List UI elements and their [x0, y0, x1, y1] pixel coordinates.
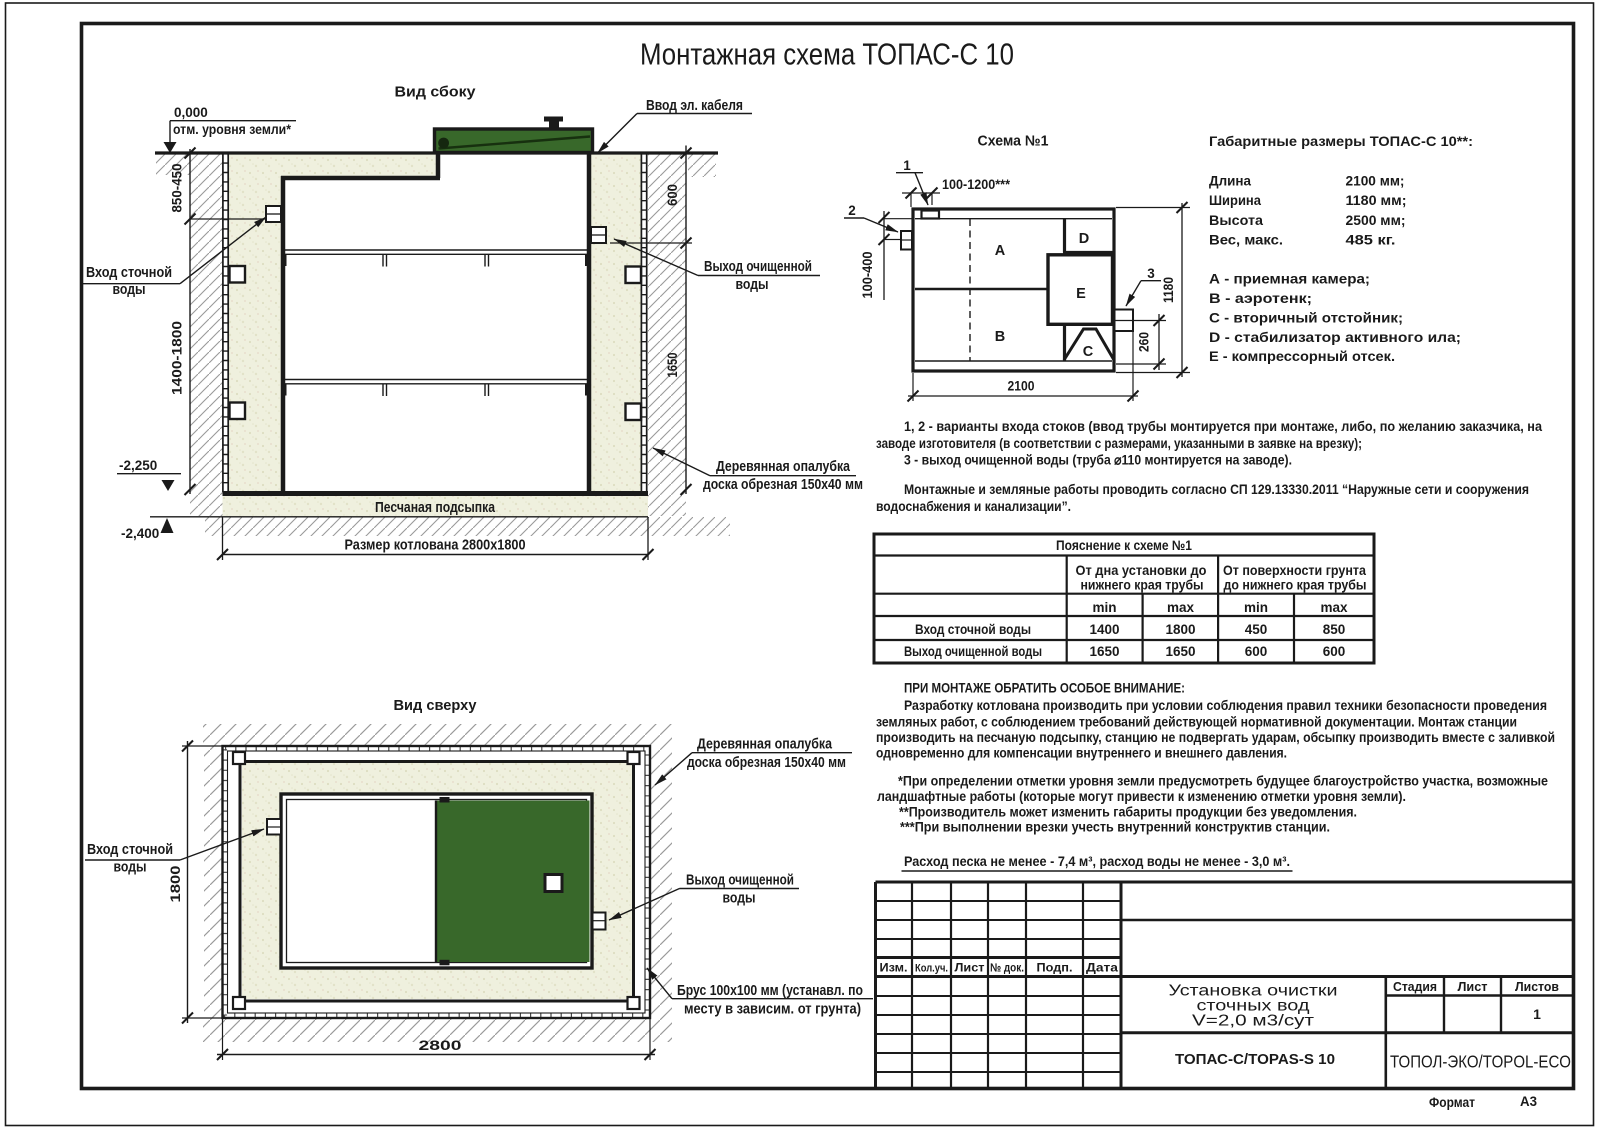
- svg-text:600: 600: [665, 184, 680, 206]
- svg-text:отм. уровня земли*: отм. уровня земли*: [173, 122, 292, 137]
- svg-text:Разработку котлована производи: Разработку котлована производить при усл…: [904, 697, 1547, 713]
- svg-text:***При выполнении врезки учест: ***При выполнении врезки учесть внутренн…: [900, 818, 1330, 834]
- svg-text:воды: воды: [736, 277, 769, 293]
- svg-text:Формат: Формат: [1429, 1095, 1475, 1110]
- svg-text:1650: 1650: [1165, 644, 1195, 659]
- svg-text:Расход песка не менее - 7,4 м³: Расход песка не менее - 7,4 м³, расход в…: [904, 853, 1290, 869]
- svg-text:C: C: [1083, 344, 1094, 360]
- svg-text:месту в зависим. от грунта): месту в зависим. от грунта): [684, 1002, 861, 1018]
- svg-text:min: min: [1244, 600, 1268, 615]
- svg-text:доска обрезная 150х40 мм: доска обрезная 150х40 мм: [687, 755, 846, 771]
- svg-text:A: A: [995, 243, 1006, 259]
- svg-text:Размер котлована 2800х1800: Размер котлована 2800х1800: [345, 538, 526, 554]
- svg-text:ТОПАС-С/TOPAS-S 10: ТОПАС-С/TOPAS-S 10: [1175, 1052, 1335, 1068]
- svg-text:2500 мм;: 2500 мм;: [1346, 212, 1406, 228]
- svg-text:D: D: [1079, 231, 1089, 247]
- svg-text:600: 600: [1323, 644, 1346, 659]
- svg-text:одновременно для компенсации в: одновременно для компенсации внутреннего…: [876, 745, 1287, 761]
- svg-text:Монтажная схема ТОПАС-С 10: Монтажная схема ТОПАС-С 10: [640, 38, 1014, 72]
- svg-text:Схема №1: Схема №1: [978, 134, 1049, 150]
- svg-text:Листов: Листов: [1515, 980, 1559, 994]
- svg-text:1650: 1650: [665, 353, 680, 378]
- svg-text:Выход очищенной: Выход очищенной: [704, 259, 812, 275]
- svg-text:1: 1: [903, 158, 911, 173]
- svg-text:производить на песчаную подсып: производить на песчаную подсыпку, станци…: [876, 729, 1555, 745]
- svg-text:Ввод эл. кабеля: Ввод эл. кабеля: [646, 98, 743, 114]
- svg-text:От дна установки до: От дна установки до: [1076, 563, 1207, 578]
- svg-text:Пояснение к схеме №1: Пояснение к схеме №1: [1056, 538, 1192, 553]
- svg-text:**Производитель может изменить: **Производитель может изменить габариты …: [899, 803, 1357, 819]
- svg-text:V=2,0 м3/сут: V=2,0 м3/сут: [1192, 1013, 1314, 1030]
- svg-text:С - вторичный отстойник;: С - вторичный отстойник;: [1209, 310, 1403, 326]
- svg-text:100-400: 100-400: [860, 252, 875, 299]
- svg-text:Лист: Лист: [955, 961, 985, 975]
- svg-text:ТОПОЛ-ЭКО/TOPOL-ECO: ТОПОЛ-ЭКО/TOPOL-ECO: [1390, 1052, 1571, 1072]
- svg-text:Деревянная опалубка: Деревянная опалубка: [716, 459, 851, 475]
- svg-text:№ док.: № док.: [990, 961, 1024, 975]
- svg-text:850-450: 850-450: [170, 164, 185, 213]
- svg-text:От поверхности грунта: От поверхности грунта: [1223, 563, 1366, 578]
- svg-text:-2,400: -2,400: [121, 526, 159, 541]
- svg-text:Вход сточной: Вход сточной: [87, 842, 173, 858]
- svg-text:нижнего края трубы: нижнего края трубы: [1081, 578, 1204, 593]
- svg-text:100-1200***: 100-1200***: [942, 177, 1011, 192]
- svg-text:2100 мм;: 2100 мм;: [1346, 173, 1405, 189]
- svg-text:B: B: [995, 329, 1005, 345]
- svg-text:Вес, макс.: Вес, макс.: [1209, 232, 1283, 248]
- svg-text:*При определении отметки уровн: *При определении отметки уровня земли пр…: [898, 773, 1548, 789]
- svg-text:1800: 1800: [1165, 622, 1195, 637]
- svg-text:Вид сбоку: Вид сбоку: [395, 85, 476, 101]
- svg-text:Вид сверху: Вид сверху: [394, 698, 477, 714]
- svg-text:D - стабилизатор активного ила: D - стабилизатор активного ила;: [1209, 329, 1461, 345]
- svg-text:min: min: [1092, 600, 1116, 615]
- svg-text:А3: А3: [1520, 1094, 1537, 1109]
- svg-text:260: 260: [1137, 332, 1152, 352]
- svg-text:E: E: [1076, 286, 1086, 302]
- svg-text:3: 3: [1147, 266, 1155, 281]
- svg-text:Деревянная опалубка: Деревянная опалубка: [697, 737, 833, 753]
- svg-text:1180 мм;: 1180 мм;: [1346, 192, 1407, 208]
- svg-text:2800: 2800: [419, 1038, 462, 1053]
- svg-text:1400: 1400: [1089, 622, 1119, 637]
- svg-text:воды: воды: [723, 891, 756, 907]
- svg-text:Вход сточной: Вход сточной: [86, 265, 172, 281]
- svg-text:ПРИ МОНТАЖЕ ОБРАТИТЬ ОСОБОЕ ВН: ПРИ МОНТАЖЕ ОБРАТИТЬ ОСОБОЕ ВНИМАНИЕ:: [904, 680, 1185, 696]
- svg-text:1800: 1800: [168, 866, 183, 903]
- svg-text:1, 2 - варианты входа стоков: 1, 2 - варианты входа стоков (ввод трубы…: [904, 418, 1542, 434]
- svg-text:Е - компрессорный отсек.: Е - компрессорный отсек.: [1209, 348, 1395, 364]
- svg-text:450: 450: [1245, 622, 1268, 637]
- svg-text:Выход очищенной: Выход очищенной: [686, 873, 794, 889]
- svg-text:Выход очищенной воды: Выход очищенной воды: [904, 644, 1042, 659]
- svg-text:max: max: [1167, 600, 1195, 615]
- svg-text:Подп.: Подп.: [1037, 961, 1073, 975]
- svg-text:3 - выход очищенной воды (труб: 3 - выход очищенной воды (труба ⌀110 мон…: [904, 452, 1292, 468]
- svg-text:2100: 2100: [1008, 379, 1035, 394]
- svg-text:Стадия: Стадия: [1393, 980, 1437, 994]
- svg-text:1650: 1650: [1089, 644, 1119, 659]
- svg-text:заводе изготовителя (в соответ: заводе изготовителя (в соответствии с ра…: [876, 435, 1362, 451]
- svg-text:Кол.уч.: Кол.уч.: [915, 963, 948, 975]
- svg-text:до нижнего края трубы: до нижнего края трубы: [1224, 578, 1367, 593]
- svg-text:Песчаная подсыпка: Песчаная подсыпка: [375, 500, 496, 516]
- svg-text:Лист: Лист: [1458, 980, 1488, 994]
- svg-text:485 кг.: 485 кг.: [1346, 232, 1396, 248]
- svg-text:Габаритные размеры ТОПАС-С 10*: Габаритные размеры ТОПАС-С 10**:: [1209, 133, 1473, 149]
- svg-text:ландшафтные работы (которые мо: ландшафтные работы (которые могут привес…: [877, 788, 1406, 804]
- svg-text:В - аэротенк;: В - аэротенк;: [1209, 290, 1312, 306]
- svg-text:воды: воды: [114, 860, 147, 876]
- svg-text:1: 1: [1533, 1006, 1541, 1022]
- svg-text:0,000: 0,000: [174, 105, 208, 120]
- svg-text:водоснабжения и канализации”.: водоснабжения и канализации”.: [876, 498, 1071, 514]
- svg-text:2: 2: [848, 203, 856, 218]
- svg-text:Длина: Длина: [1209, 173, 1251, 189]
- svg-text:Монтажные и земляные работы пр: Монтажные и земляные работы проводить со…: [904, 481, 1529, 497]
- svg-text:1180: 1180: [1161, 277, 1176, 303]
- svg-text:земляных работ, с соблюдением: земляных работ, с соблюдением требований…: [876, 713, 1517, 729]
- svg-text:-2,250: -2,250: [119, 458, 157, 473]
- svg-text:Дата: Дата: [1086, 961, 1118, 975]
- svg-text:1400-1800: 1400-1800: [170, 321, 185, 395]
- svg-text:600: 600: [1245, 644, 1268, 659]
- svg-text:850: 850: [1323, 622, 1346, 637]
- svg-text:Изм.: Изм.: [880, 961, 908, 975]
- svg-text:А - приемная камера;: А - приемная камера;: [1209, 271, 1370, 287]
- svg-text:Высота: Высота: [1209, 212, 1263, 228]
- svg-text:Ширина: Ширина: [1209, 192, 1261, 208]
- svg-text:Вход сточной воды: Вход сточной воды: [915, 622, 1031, 637]
- svg-text:Брус 100х100 мм (устанавл. по: Брус 100х100 мм (устанавл. по: [677, 983, 863, 999]
- svg-text:доска обрезная 150х40 мм: доска обрезная 150х40 мм: [703, 477, 863, 493]
- svg-text:max: max: [1320, 600, 1348, 615]
